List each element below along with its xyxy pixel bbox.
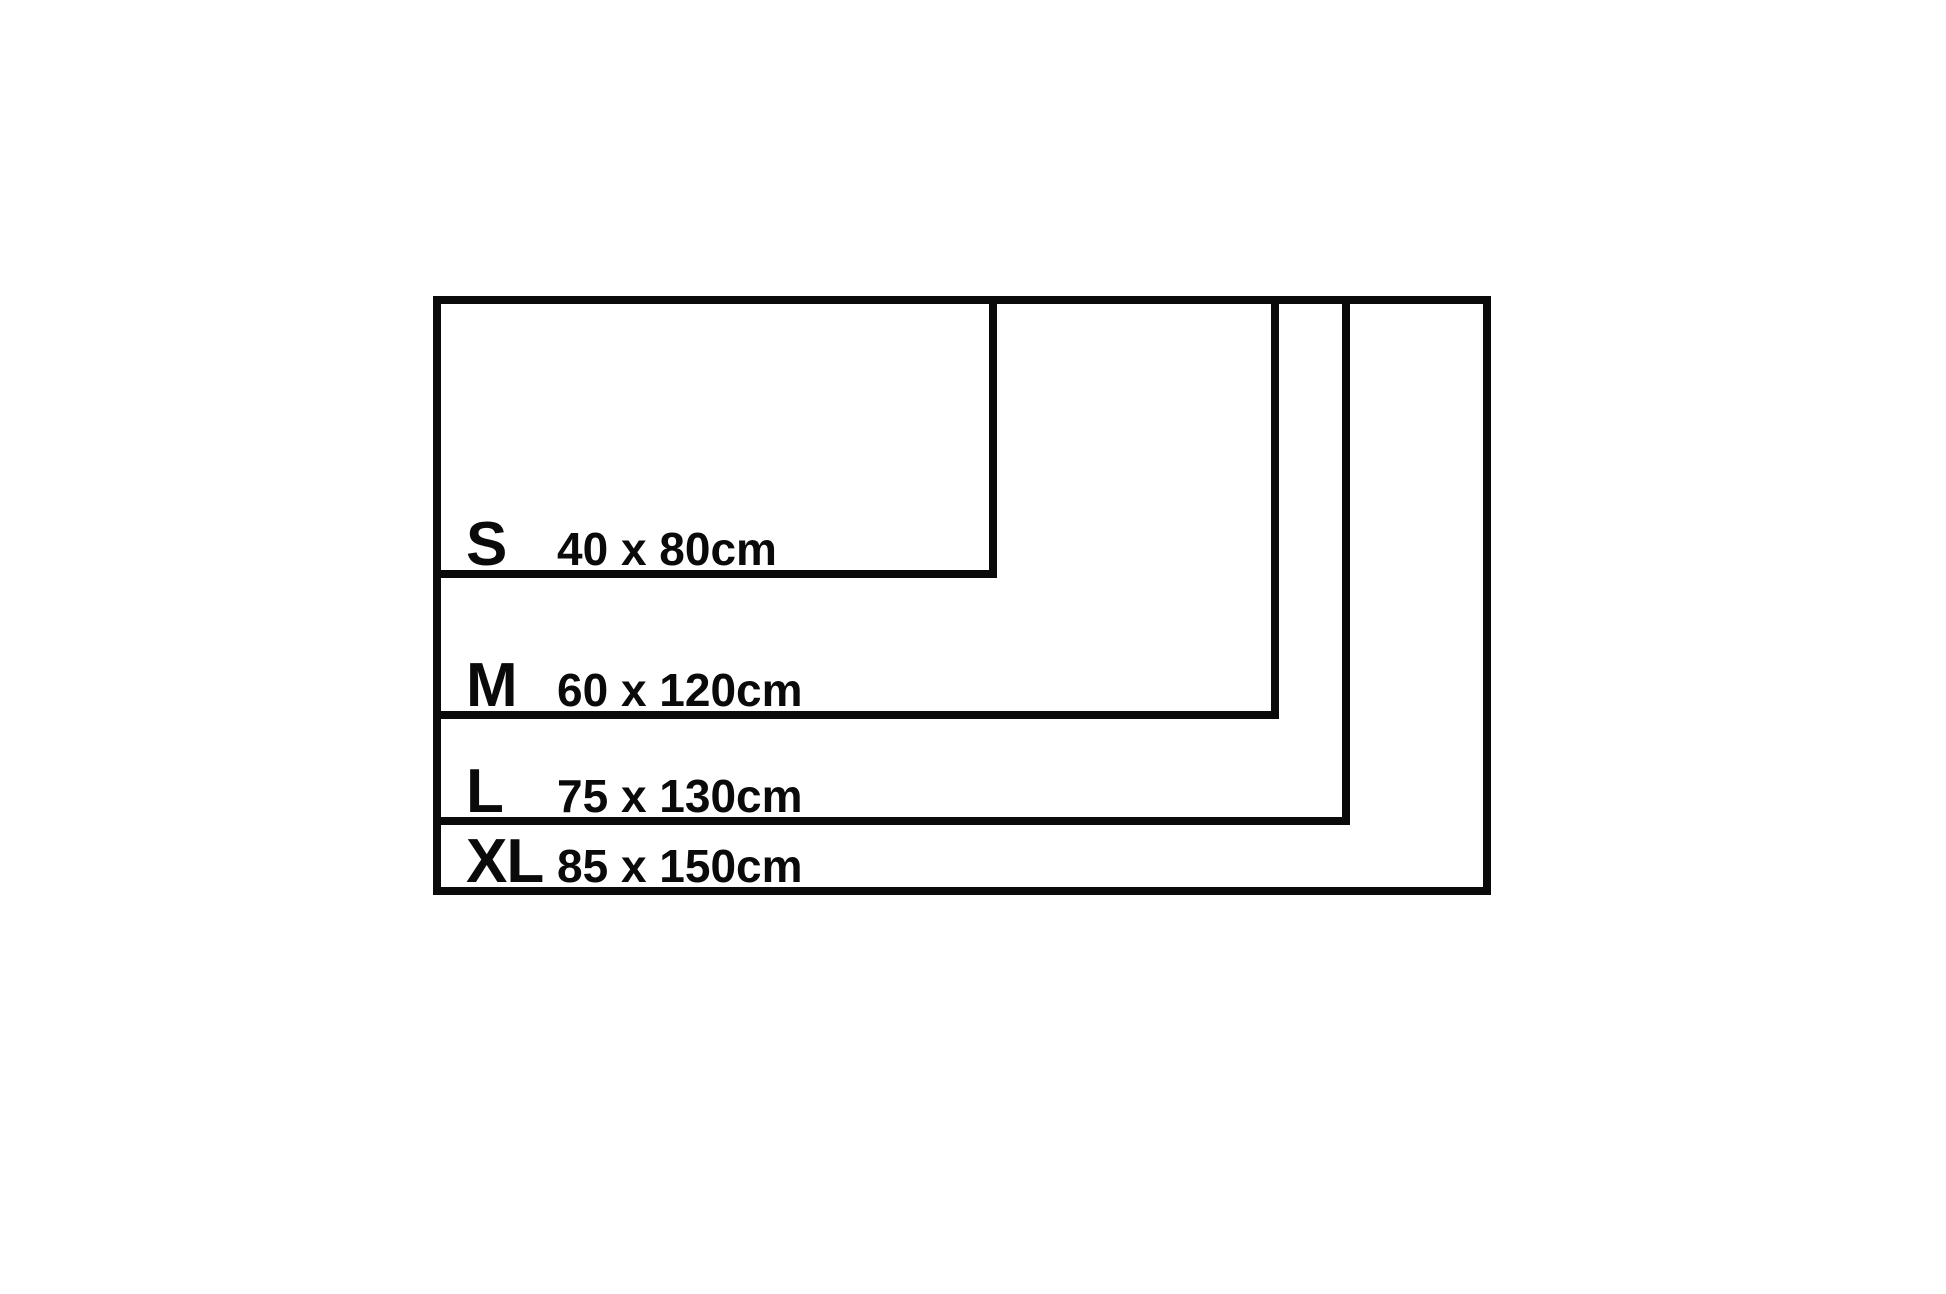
size-dims-l: 75 x 130cm <box>557 773 803 819</box>
size-rect-s: S 40 x 80cm <box>433 296 997 578</box>
size-letter-l: L <box>466 761 557 823</box>
size-chart-diagram: XL 85 x 150cm L 75 x 130cm M 60 x 120cm … <box>0 0 1946 1294</box>
size-dims-m: 60 x 120cm <box>557 667 803 713</box>
size-letter-m: M <box>466 655 557 717</box>
size-letter-xl: XL <box>466 831 557 893</box>
size-label-m: M 60 x 120cm <box>466 655 803 717</box>
size-dims-s: 40 x 80cm <box>557 526 777 572</box>
size-label-xl: XL 85 x 150cm <box>466 831 803 893</box>
size-dims-xl: 85 x 150cm <box>557 843 803 889</box>
size-letter-s: S <box>466 514 557 576</box>
size-label-l: L 75 x 130cm <box>466 761 803 823</box>
size-label-s: S 40 x 80cm <box>466 514 777 576</box>
